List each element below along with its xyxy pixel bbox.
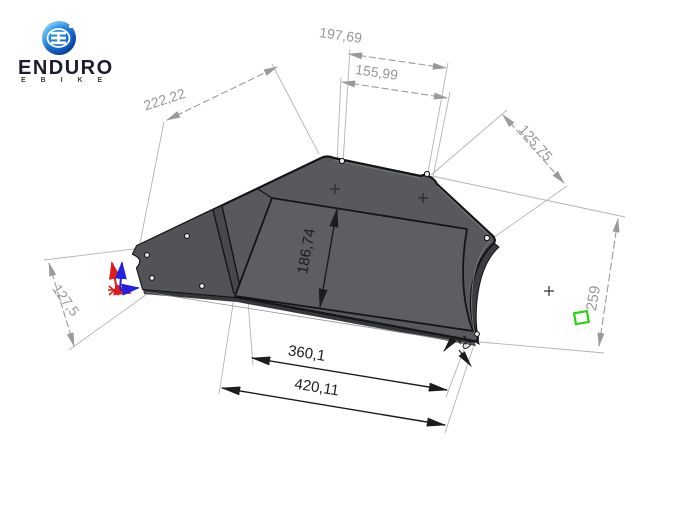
ext-127-top	[44, 249, 134, 260]
dimension-197-69: 197,69	[318, 24, 446, 68]
axis-blue-right-arrow	[119, 288, 138, 290]
ext-360-left	[248, 301, 253, 365]
dimension-value: 197,69	[318, 24, 363, 46]
brand-subname: E B I K E	[21, 77, 109, 84]
origin-cross-icon	[108, 286, 120, 295]
dimension-value: 155,99	[354, 61, 399, 83]
ext-222-left	[140, 122, 164, 243]
vertex-marker	[544, 286, 554, 296]
ext-420-left	[219, 298, 234, 394]
hole	[339, 158, 344, 163]
ext-222-right	[272, 64, 319, 154]
hole	[484, 235, 489, 240]
axis-blue-up-arrow	[120, 263, 122, 290]
ext-197-left	[343, 49, 350, 163]
dimension-125-75: 125,75	[503, 115, 564, 183]
ext-125-left	[431, 110, 507, 175]
dimension-222-22: 222,22	[142, 67, 277, 120]
hole	[150, 276, 155, 281]
dimension-127-5: 127,5	[49, 263, 83, 346]
hole	[424, 171, 429, 176]
dimension-value: 420,11	[293, 376, 340, 400]
dimension-line	[252, 358, 447, 390]
dimension-value: 259	[583, 284, 604, 312]
hole	[200, 284, 205, 289]
axis-red-up-arrow	[112, 263, 117, 290]
logo-globe-icon	[42, 21, 76, 55]
ext-125-right	[490, 186, 567, 240]
selection-highlight	[574, 311, 589, 324]
dimension-360-1: 360,1	[252, 342, 447, 390]
dimension-155-99: 155,99	[342, 61, 447, 98]
logo-glyph-icon	[42, 21, 76, 55]
dimension-value: 222,22	[142, 85, 188, 114]
ext-259-bottom	[480, 342, 604, 353]
dimension-420-11: 420,11	[222, 376, 445, 425]
dimension-value: 127,5	[49, 281, 83, 319]
dimension-line	[599, 219, 618, 346]
hole	[185, 234, 190, 239]
part-plate	[133, 157, 554, 347]
origin-triad	[108, 263, 138, 295]
dimension-value: 360,1	[287, 342, 327, 365]
ext-127-bottom	[69, 292, 150, 350]
ext-155-right	[433, 92, 450, 177]
hole	[475, 332, 480, 337]
dimension-value: 125,75	[516, 121, 556, 164]
dimension-259: 259	[583, 219, 618, 346]
dimension-line	[342, 82, 447, 98]
brand-logo: ENDURO E B I K E	[10, 8, 130, 92]
hole	[145, 253, 150, 258]
